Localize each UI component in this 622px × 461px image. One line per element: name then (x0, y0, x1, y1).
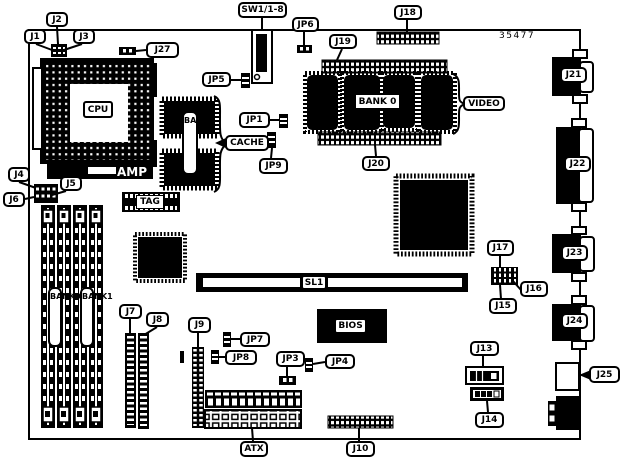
cache-bank0-label: BANK0 (182, 111, 198, 175)
callout-j13: J13 (470, 341, 499, 356)
callout-j1: J1 (24, 29, 46, 44)
callout-j17: J17 (487, 240, 514, 256)
callout-j7: J7 (119, 304, 142, 319)
callout-j6: J6 (3, 192, 25, 207)
j27-connector (119, 47, 136, 55)
callout-jp3: JP3 (276, 351, 305, 367)
sl1-label: SL1 (301, 275, 327, 290)
callout-j27: J27 (146, 42, 179, 58)
j18-header (377, 32, 439, 44)
callout-jp1: JP1 (239, 112, 270, 128)
motherboard-diagram: J1 J2 J3 J27 SW1/1-8 JP6 J19 J18 JP5 JP1… (0, 0, 622, 461)
jp6-jumper (297, 45, 312, 53)
callout-j19: J19 (329, 34, 357, 49)
amp-label: AMP (117, 165, 147, 179)
chipset-qfp-small (135, 234, 185, 281)
callout-j22: J22 (564, 156, 591, 172)
memory-bank0-label: BANK0 (48, 287, 62, 347)
callout-sw1: SW1/1-8 (238, 2, 287, 18)
callout-j20: J20 (362, 156, 390, 171)
atx-connector (205, 390, 302, 428)
j7-header (125, 333, 136, 428)
j25-port (556, 363, 579, 390)
jp1-jumper (279, 114, 288, 128)
sl1-slot (196, 273, 468, 292)
small-component (180, 351, 184, 363)
callout-j25: J25 (589, 366, 620, 383)
cpu-socket (33, 58, 157, 179)
jp5-jumper (241, 73, 250, 88)
part-number: 35477 (499, 31, 535, 41)
audio-jack-stack (548, 396, 580, 430)
bios-label: BIOS (334, 318, 367, 334)
callout-jp8: JP8 (225, 350, 257, 365)
jp3-jumper (279, 376, 296, 385)
j8-header (138, 333, 149, 429)
socket-lever (33, 68, 42, 149)
callout-jp7: JP7 (240, 332, 270, 347)
callout-j8: J8 (146, 312, 169, 327)
j9-header (192, 347, 204, 428)
callout-j18: J18 (394, 5, 422, 20)
callout-j10: J10 (346, 441, 375, 457)
cpu-label: CPU (83, 101, 113, 118)
callout-j16: J16 (520, 281, 548, 297)
chipset-qfp-large (396, 176, 472, 254)
callout-j23: J23 (561, 245, 588, 261)
jp8-jumper (211, 350, 219, 364)
callout-jp6: JP6 (292, 17, 319, 32)
callout-j5: J5 (60, 176, 82, 191)
callout-atx: ATX (240, 441, 268, 457)
jp4-jumper (305, 358, 313, 372)
callout-j2: J2 (46, 12, 68, 27)
callout-jp5: JP5 (202, 72, 231, 87)
sw1-dip-switch (252, 30, 272, 83)
callout-j14: J14 (475, 412, 504, 428)
callout-cache: CACHE (225, 135, 269, 151)
callout-j3: J3 (73, 29, 95, 44)
memory-bank1-label: BANK1 (80, 287, 94, 347)
callout-j4: J4 (8, 167, 30, 182)
callout-jp4: JP4 (325, 354, 355, 369)
callout-video: VIDEO (463, 96, 505, 111)
diagram-graphics (0, 0, 622, 461)
callout-jp9: JP9 (259, 158, 288, 174)
callout-j9: J9 (188, 317, 211, 333)
callout-j15: J15 (489, 298, 517, 314)
j14-connector (470, 387, 504, 401)
video-bank0-label: BANK 0 (355, 94, 400, 109)
j10-header (328, 416, 393, 428)
tag-label: TAG (136, 195, 164, 209)
jp7-jumper (223, 332, 231, 347)
callout-j24: J24 (561, 313, 588, 329)
j13-connector (466, 367, 503, 384)
callout-j21: J21 (560, 67, 587, 83)
